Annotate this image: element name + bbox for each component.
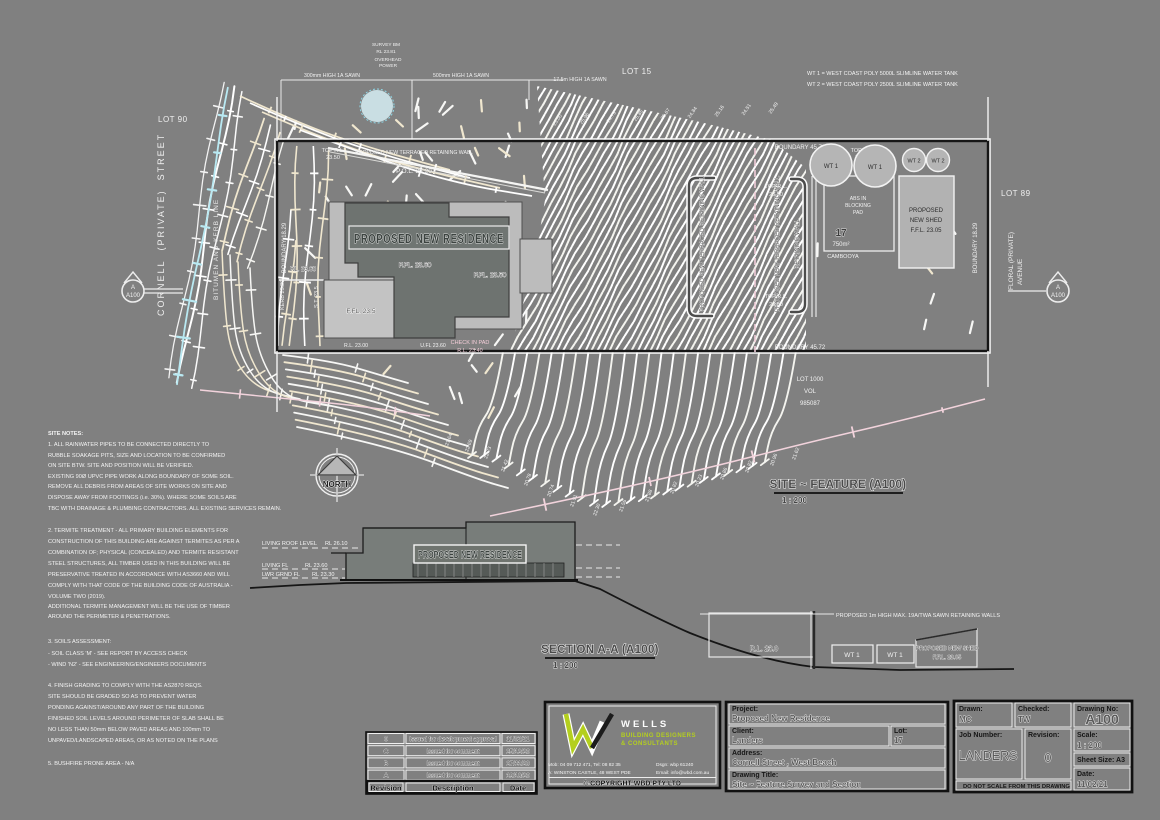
svg-text:TOP R.L.: TOP R.L. [765, 294, 788, 300]
svg-text:19/10/20: 19/10/20 [506, 774, 530, 780]
svg-text:LIVING FL: LIVING FL [262, 563, 288, 569]
svg-text:RETAINING WALL: RETAINING WALL [795, 218, 801, 269]
svg-text:RL 23.30: RL 23.30 [312, 572, 335, 578]
svg-text:PROPOSED: PROPOSED [909, 208, 944, 214]
svg-text:EXISTING 90Ø UPVC PIPE WORK AL: EXISTING 90Ø UPVC PIPE WORK ALONG BOUNDA… [48, 474, 234, 480]
svg-text:NORTH: NORTH [323, 480, 352, 489]
svg-text:- WIND 'N2' - SEE ENGINEERING/: - WIND 'N2' - SEE ENGINEERING/ENGINEERS … [48, 662, 206, 668]
svg-text:P.O.L. 23.20: P.O.L. 23.20 [396, 168, 432, 175]
svg-text:TBC WITH DRAINAGE & PLUMBING C: TBC WITH DRAINAGE & PLUMBING CONTRACTORS… [48, 506, 282, 512]
svg-text:AVENUE: AVENUE [1017, 258, 1024, 285]
svg-text:FINISHED SOIL LEVELS AROUND PE: FINISHED SOIL LEVELS AROUND PERIMETER OF… [48, 716, 224, 722]
svg-text:PONDING AGAINST/AROUND ANY PAR: PONDING AGAINST/AROUND ANY PART OF THE B… [48, 705, 204, 711]
svg-text:27/11/20: 27/11/20 [507, 762, 531, 768]
svg-text:Cornell Street , West Beach: Cornell Street , West Beach [732, 758, 836, 767]
svg-text:A100: A100 [1085, 711, 1119, 727]
svg-text:WT 1 = WEST COAST POLY 5000L S: WT 1 = WEST COAST POLY 5000L SLIMLINE WA… [807, 71, 958, 77]
svg-text:WT 2 = WEST COAST POLY 2500L S: WT 2 = WEST COAST POLY 2500L SLIMLINE WA… [807, 82, 958, 88]
svg-text:Date:: Date: [1077, 771, 1095, 778]
svg-text:PROPOSED NEW TERRACED RETAININ: PROPOSED NEW TERRACED RETAINING WALL [700, 175, 706, 312]
svg-text:0: 0 [384, 736, 388, 743]
svg-text:BITUMEN AND KERB LINE: BITUMEN AND KERB LINE [213, 199, 220, 300]
svg-text:R.L. 23.0: R.L. 23.0 [750, 646, 779, 653]
svg-text:17.5m HIGH 1A SAWN: 17.5m HIGH 1A SAWN [553, 77, 606, 83]
svg-text:WT 1: WT 1 [887, 652, 903, 659]
svg-text:Job Number:: Job Number: [959, 732, 1002, 739]
svg-text:POWER: POWER [379, 63, 398, 69]
svg-text:500mm HIGH 1A SAWN: 500mm HIGH 1A SAWN [433, 73, 489, 79]
svg-text:1 : 200: 1 : 200 [782, 496, 807, 505]
svg-text:23.50: 23.50 [326, 155, 340, 161]
svg-text:Revision: Revision [370, 784, 402, 793]
svg-text:985087: 985087 [800, 401, 821, 407]
svg-text:WT 1: WT 1 [868, 165, 883, 171]
svg-text:Drawing Title:: Drawing Title: [732, 772, 778, 779]
svg-text:3. SOILS ASSESSMENT:: 3. SOILS ASSESSMENT: [48, 639, 112, 645]
svg-text:SITE NOTES:: SITE NOTES: [48, 431, 83, 437]
svg-text:300mm HIGH 1A SAWN: 300mm HIGH 1A SAWN [304, 73, 360, 79]
svg-text:LWR GRND FL: LWR GRND FL [262, 572, 300, 578]
svg-text:F.FL. 23.50: F.FL. 23.50 [474, 272, 507, 279]
svg-text:PROPOSED NEW TERRACED RETAININ: PROPOSED NEW TERRACED RETAINING WALL [355, 150, 473, 156]
svg-text:REMOVE ALL DEBRIS FROM AREAS O: REMOVE ALL DEBRIS FROM AREAS OF SITE WOR… [48, 484, 227, 490]
svg-text:PROPOSED NEW RESIDENCE: PROPOSED NEW RESIDENCE [354, 231, 504, 246]
svg-text:- SOIL CLASS 'M' - SEE REPORT: - SOIL CLASS 'M' - SEE REPORT BY ACCESS … [48, 651, 188, 657]
svg-text:RL 26.10: RL 26.10 [325, 541, 348, 547]
svg-text:LOT 90: LOT 90 [158, 115, 188, 124]
svg-text:23.50: 23.50 [769, 302, 783, 308]
svg-text:BOUNDARY 18.29: BOUNDARY 18.29 [973, 222, 979, 273]
svg-text:SITE SHOULD BE GRADED SO AS TO: SITE SHOULD BE GRADED SO AS TO PREVENT W… [48, 694, 196, 700]
svg-text:LANDERS: LANDERS [958, 749, 1017, 763]
svg-text:Date: Date [510, 784, 526, 793]
svg-text:UNPAVED/LANDSCAPED AREAS, OR A: UNPAVED/LANDSCAPED AREAS, OR AS NOTED ON… [48, 738, 218, 744]
svg-text:FLORAL (PRIVATE): FLORAL (PRIVATE) [1008, 232, 1015, 290]
svg-text:WELLS: WELLS [621, 719, 669, 730]
svg-text:PROPOSED NEW RESIDENCE: PROPOSED NEW RESIDENCE [418, 550, 522, 561]
svg-text:RUBBLE SOAKAGE PITS, SIZE AND: RUBBLE SOAKAGE PITS, SIZE AND LOCATION T… [48, 453, 225, 459]
svg-text:WT 1: WT 1 [844, 652, 860, 659]
svg-text:Scale:: Scale: [1077, 732, 1098, 739]
svg-text:F.FL. 23.5: F.FL. 23.5 [347, 308, 376, 315]
svg-text:11/02/21: 11/02/21 [507, 737, 531, 743]
svg-text:Description: Description [432, 784, 474, 793]
svg-text:LOT 1000: LOT 1000 [797, 377, 824, 383]
svg-text:STEEL STRUCTURES, ALL TIMBER U: STEEL STRUCTURES, ALL TIMBER USED IN THI… [48, 561, 231, 567]
svg-text:ADDITIONAL TERMITE MANAGEMENT: ADDITIONAL TERMITE MANAGEMENT WILL BE TH… [48, 604, 230, 610]
svg-text:BLOCKING: BLOCKING [845, 203, 871, 209]
svg-text:Sheet Size: A3: Sheet Size: A3 [1077, 757, 1125, 764]
svg-text:0: 0 [1045, 751, 1052, 765]
svg-text:Address:: Address: [732, 750, 762, 757]
svg-text:SITE ~ FEATURE (A100): SITE ~ FEATURE (A100) [770, 479, 907, 491]
svg-text:RL 23.81: RL 23.81 [376, 49, 396, 55]
svg-text:A: A [1056, 285, 1060, 291]
svg-text:SECTION A-A (A100): SECTION A-A (A100) [541, 644, 659, 656]
svg-text:A: WINSTON CASTLE, 48 WEST PDE: A: WINSTON CASTLE, 48 WEST PDE [548, 770, 631, 776]
svg-text:R.L. 23.00: R.L. 23.00 [344, 343, 368, 349]
svg-text:Mob: 04 09 712 471, Tel: 08 82: Mob: 04 09 712 471, Tel: 08 82 35 [548, 762, 621, 768]
svg-text:B: B [384, 761, 388, 768]
svg-text:Email: info@wbd.com.au: Email: info@wbd.com.au [656, 770, 709, 776]
svg-text:BUILDING DESIGNERS: BUILDING DESIGNERS [621, 733, 696, 739]
svg-text:Issued for development approva: Issued for development approval [409, 737, 496, 743]
svg-text:25/12/20: 25/12/20 [506, 749, 530, 755]
svg-text:NO LESS THAN 50mm BELOW PAVED: NO LESS THAN 50mm BELOW PAVED AREAS AND … [48, 727, 211, 733]
svg-text:Issued for comment: Issued for comment [427, 749, 480, 755]
svg-text:RL. 23.60: RL. 23.60 [290, 267, 317, 273]
svg-text:Client:: Client: [732, 728, 754, 735]
svg-text:2. TERMITE TREATMENT - ALL PRI: 2. TERMITE TREATMENT - ALL PRIMARY BUILD… [48, 528, 228, 534]
svg-text:PROPOSED 1m HIGH MAX. 19A/TWA: PROPOSED 1m HIGH MAX. 19A/TWA SAWN RETAI… [836, 613, 1000, 619]
svg-text:ABS IN: ABS IN [850, 196, 867, 202]
svg-text:WT 2: WT 2 [907, 159, 920, 165]
svg-text:C: C [384, 748, 389, 755]
svg-text:A: A [131, 285, 135, 291]
svg-text:Site ~ Feature Survey and Sect: Site ~ Feature Survey and Section [732, 780, 861, 789]
svg-text:PAD: PAD [853, 210, 863, 216]
svg-text:LOT 89: LOT 89 [1001, 189, 1031, 198]
svg-text:VOLUME TWO (2019).: VOLUME TWO (2019). [48, 594, 106, 600]
svg-text:BOUNDARY 45.72: BOUNDARY 45.72 [775, 345, 826, 351]
svg-text:WT 1: WT 1 [824, 164, 839, 170]
svg-text:& CONSULTANTS: & CONSULTANTS [621, 741, 678, 747]
svg-text:23.50: 23.50 [769, 192, 783, 198]
svg-text:DISPOSE AWAY FROM FOOTINGS (i.: DISPOSE AWAY FROM FOOTINGS (i.e. 30%). W… [48, 495, 237, 501]
svg-text:NEW SHED: NEW SHED [910, 218, 943, 224]
svg-text:CONSTRUCTION OF THIS BUILDING: CONSTRUCTION OF THIS BUILDING ARE AGAINS… [48, 539, 240, 545]
svg-text:RL 23.60: RL 23.60 [305, 563, 328, 569]
svg-text:CHECK IN PAD: CHECK IN PAD [451, 340, 490, 346]
svg-text:Issued for comment: Issued for comment [427, 774, 480, 780]
svg-text:KERB 23.20: KERB 23.20 [280, 280, 286, 310]
svg-text:Drawn:: Drawn: [959, 706, 983, 713]
svg-text:11/02/21: 11/02/21 [1077, 780, 1108, 789]
svg-text:SURVEY BM: SURVEY BM [372, 42, 400, 48]
svg-text:Revision:: Revision: [1028, 732, 1060, 739]
svg-text:COMPLY WITH THAT CODE OF THE B: COMPLY WITH THAT CODE OF THE BUILDING CO… [48, 583, 233, 589]
svg-text:Landers: Landers [732, 736, 764, 745]
svg-text:S.T. 23.5: S.T. 23.5 [314, 286, 320, 308]
svg-text:17: 17 [894, 736, 903, 745]
svg-text:1 : 200: 1 : 200 [553, 661, 578, 670]
svg-text:A100: A100 [126, 293, 141, 299]
svg-text:U.FL 23.60: U.FL 23.60 [420, 343, 446, 349]
svg-text:1. ALL RAINWATER PIPES TO BE C: 1. ALL RAINWATER PIPES TO BE CONNECTED D… [48, 442, 210, 448]
svg-text:OVERHEAD: OVERHEAD [375, 57, 402, 63]
svg-text:VOL: VOL [804, 389, 817, 395]
svg-text:LIVING ROOF LEVEL: LIVING ROOF LEVEL [262, 541, 317, 547]
svg-text:AROUND THE PERIMETER & PENETRA: AROUND THE PERIMETER & PENETRATIONS. [48, 614, 171, 620]
svg-text:ON SITE BTW. SITE AND POSITION: ON SITE BTW. SITE AND POSITION WILL BE V… [48, 463, 194, 469]
svg-text:MC: MC [959, 715, 972, 724]
svg-text:CAMBOOYA: CAMBOOYA [827, 254, 859, 260]
svg-text:Issued for comment: Issued for comment [427, 762, 480, 768]
svg-text:1 : 200: 1 : 200 [1077, 741, 1102, 750]
svg-text:5. BUSHFIRE PRONE AREA - N/A: 5. BUSHFIRE PRONE AREA - N/A [48, 761, 135, 767]
svg-text:COMBINATION OF; PHYSICAL (CONC: COMBINATION OF; PHYSICAL (CONCEALED) AND… [48, 550, 239, 556]
svg-text:A: A [384, 773, 389, 780]
svg-text:R.L. 23.40: R.L. 23.40 [457, 348, 482, 354]
svg-text:DO NOT SCALE FROM THIS DRAWING: DO NOT SCALE FROM THIS DRAWING [963, 784, 1070, 790]
svg-text:TW: TW [1018, 715, 1031, 724]
svg-text:17: 17 [835, 228, 847, 239]
svg-text:Proposed New Residence: Proposed New Residence [732, 714, 830, 723]
svg-text:WT 2: WT 2 [931, 159, 944, 165]
svg-text:4. FINISH GRADING TO COMPLY WI: 4. FINISH GRADING TO COMPLY WITH THE AS2… [48, 683, 203, 689]
svg-text:A100: A100 [1051, 293, 1066, 299]
svg-text:F.F.L. 23.05: F.F.L. 23.05 [910, 228, 942, 234]
svg-text:F.FL. 23.60: F.FL. 23.60 [399, 262, 432, 269]
svg-text:PRESERVATIVE TREATED IN ACCORD: PRESERVATIVE TREATED IN ACCORDANCE WITH … [48, 572, 230, 578]
svg-text:© COPYRIGHT WBD PTY LTD: © COPYRIGHT WBD PTY LTD [583, 780, 681, 788]
svg-text:Checked:: Checked: [1018, 706, 1050, 713]
svg-text:F.F.L. 23.05: F.F.L. 23.05 [933, 655, 961, 661]
svg-text:750m²: 750m² [832, 242, 849, 248]
svg-text:TOP R.L.: TOP R.L. [322, 148, 345, 154]
svg-text:Lot:: Lot: [894, 728, 907, 735]
svg-text:Dsgn: wbp 61240: Dsgn: wbp 61240 [656, 762, 694, 768]
svg-text:Project:: Project: [732, 706, 758, 713]
svg-text:PROPOSED NEW SHED: PROPOSED NEW SHED [916, 646, 978, 652]
svg-text:LOT 15: LOT 15 [622, 67, 652, 76]
svg-text:BOUNDARY 18.29: BOUNDARY 18.29 [282, 222, 288, 273]
svg-text:TOP R.L.: TOP R.L. [765, 184, 788, 190]
